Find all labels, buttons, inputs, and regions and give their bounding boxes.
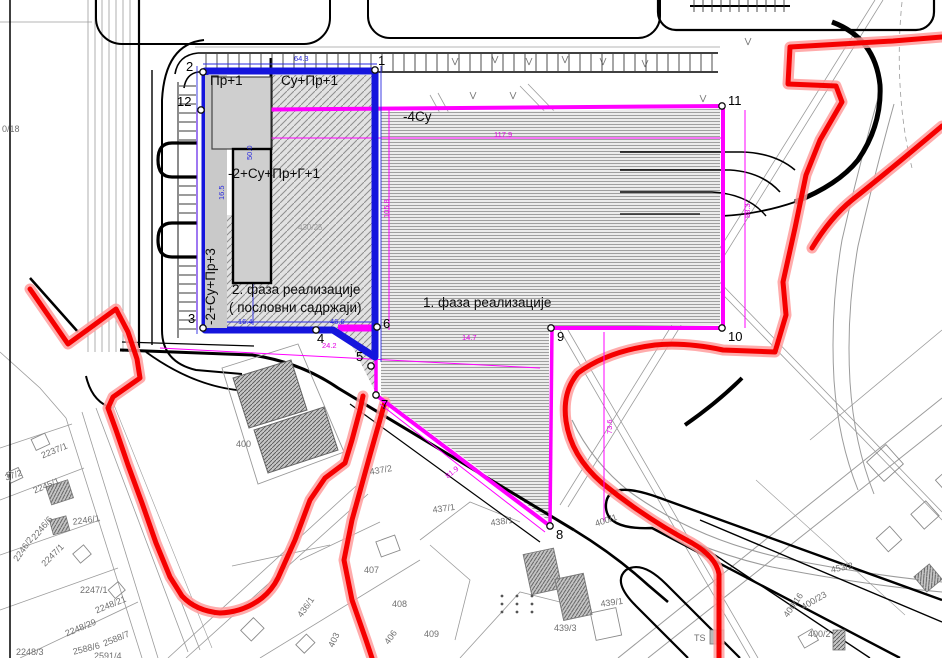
- boundary-point-5: [368, 363, 374, 369]
- map-drawing: [0, 0, 942, 658]
- boundary-point-4: [313, 327, 319, 333]
- boundary-point-7: [373, 392, 379, 398]
- boundary-point-12: [198, 107, 204, 113]
- boundary-point-11: [719, 103, 725, 109]
- boundary-point-6: [374, 324, 380, 330]
- building-pr1: [212, 77, 271, 149]
- boundary-point-1: [372, 67, 378, 73]
- boundary-point-2: [200, 69, 206, 75]
- boundary-point-3: [200, 325, 206, 331]
- boundary-point-10: [719, 325, 725, 331]
- boundary-point-8: [547, 523, 553, 529]
- building-lower: [233, 149, 271, 283]
- map-canvas: Пр+1Су+Пр+1-2+Су+Пр+Г+1-2+Су+Пр+32. фаза…: [0, 0, 942, 658]
- boundary-point-9: [548, 325, 554, 331]
- dot-grid: [501, 595, 534, 614]
- survey-marks: [452, 38, 751, 102]
